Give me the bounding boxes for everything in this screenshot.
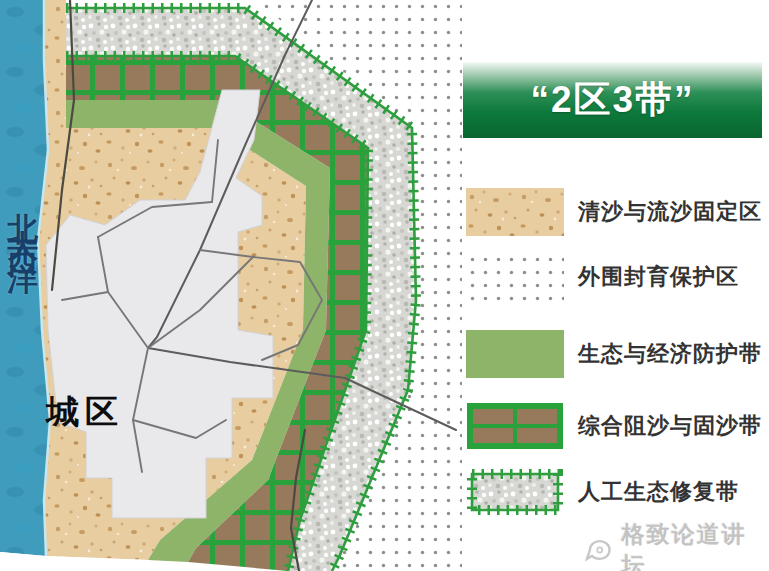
legend-label: 外围封育保护区 <box>578 262 739 292</box>
plan-map: 北大西洋 城区 <box>0 0 463 571</box>
banner-title: “2区3带” <box>530 75 694 125</box>
legend-item-enclosure-protection: 外围封育保护区 <box>466 253 739 301</box>
city-label: 城区 <box>46 390 124 435</box>
legend-item-sand-fixing: 清沙与流沙固定区 <box>466 188 762 236</box>
watermark: 格致论道讲坛 <box>584 519 769 571</box>
watermark-text: 格致论道讲坛 <box>621 519 769 571</box>
forum-logo-icon <box>584 536 615 564</box>
dots-swatch <box>466 253 564 301</box>
grid-swatch <box>466 402 564 450</box>
legend-item-eco-economic-belt: 生态与经济防护带 <box>466 330 762 378</box>
plan-map-svg <box>0 0 463 571</box>
legend-label: 综合阻沙与固沙带 <box>578 411 762 441</box>
legend-item-sand-blocking-belt: 综合阻沙与固沙带 <box>466 402 762 450</box>
gravel-swatch <box>466 468 564 516</box>
ocean-label: 北大西洋 <box>7 188 38 256</box>
green-swatch <box>466 330 564 378</box>
legend-item-restoration-belt: 人工生态修复带 <box>466 468 739 516</box>
legend-label: 生态与经济防护带 <box>578 339 762 369</box>
slide: 北大西洋 城区 “2区3带” 清沙与流沙固定区 外围封育保护区 生态与经济防护带 <box>0 0 769 571</box>
title-banner: “2区3带” <box>463 62 762 138</box>
legend-label: 清沙与流沙固定区 <box>578 197 762 227</box>
legend-panel: “2区3带” 清沙与流沙固定区 外围封育保护区 生态与经济防护带 <box>462 0 769 571</box>
sand-swatch <box>466 188 564 236</box>
legend-label: 人工生态修复带 <box>578 477 739 507</box>
